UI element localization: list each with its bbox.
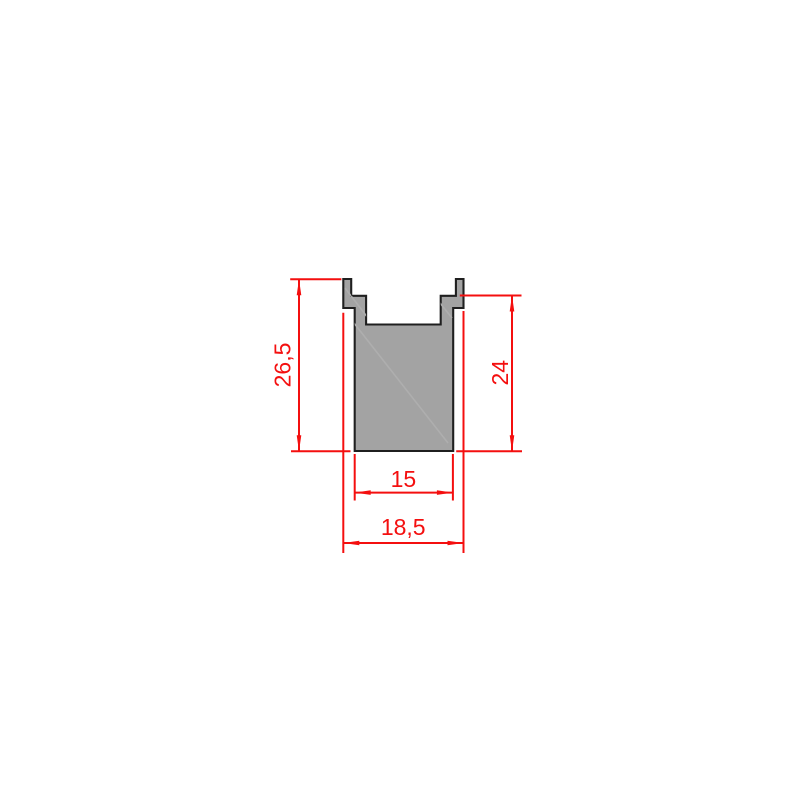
svg-text:18,5: 18,5 [381, 514, 426, 540]
svg-text:24: 24 [487, 360, 513, 386]
svg-text:26,5: 26,5 [270, 343, 296, 388]
svg-text:15: 15 [391, 466, 417, 492]
